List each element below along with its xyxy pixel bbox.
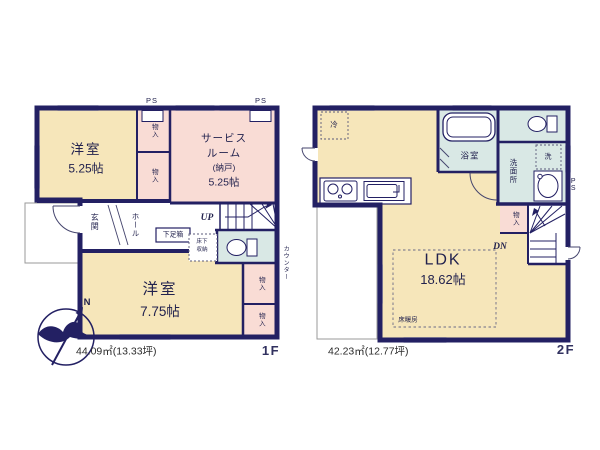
stove-icon <box>324 181 357 201</box>
entrance-door-gap <box>77 206 83 233</box>
bedroom1-size: 5.25帖 <box>68 163 103 176</box>
service-room-name-1: サービス <box>201 133 247 144</box>
toilet2-icon <box>528 116 557 132</box>
bedroom2-label: 洋室 <box>142 282 177 298</box>
stairs-window-gap <box>565 247 571 260</box>
ps-shaft-1 <box>142 111 163 122</box>
floor1-label: 1F <box>262 344 280 358</box>
floor-heating-label: 床暖房 <box>398 318 418 325</box>
ldk-label: LDK <box>424 253 461 270</box>
service-room-size: 5.25帖 <box>209 177 240 188</box>
stairs-down-label: DN <box>493 243 507 253</box>
closet-label-1: 物入 <box>150 124 157 139</box>
bathtub-icon <box>443 113 495 141</box>
floor2-area: 42.23㎡(12.77坪) <box>328 346 409 357</box>
closet-label-3: 物入 <box>257 277 264 292</box>
ps-shaft-2 <box>250 111 271 122</box>
side-door-gap <box>312 148 318 161</box>
floor1-area: 44.09㎡(13.33坪) <box>76 346 157 357</box>
ldk-size: 18.62帖 <box>420 273 466 287</box>
hall-label: ホール <box>131 212 139 238</box>
sink-icon <box>364 182 404 201</box>
service-room-name-2: ルーム <box>207 148 241 159</box>
underfloor-storage-label-1: 床下 <box>196 240 207 246</box>
bathroom-label: 浴室 <box>460 152 479 161</box>
ps-label-2: PS <box>255 97 267 105</box>
refrigerator-label: 冷 <box>330 121 338 129</box>
counter-label: カウンター <box>282 246 288 281</box>
shoe-box-label: 下足箱 <box>163 231 183 238</box>
closet-column-2 <box>243 263 279 339</box>
washroom-label: 洗面所 <box>509 158 517 184</box>
stairs-up-label: UP <box>201 214 214 224</box>
entrance-step-marks <box>108 205 128 245</box>
underfloor-storage-label-2: 収納 <box>196 248 207 254</box>
washing-machine-pan <box>534 171 562 201</box>
closet-label-4: 物入 <box>257 313 264 328</box>
floor2-plan <box>302 106 580 343</box>
bedroom1-label: 洋室 <box>71 143 102 157</box>
stairs-f1 <box>225 202 278 230</box>
laundry-label: 洗 <box>545 153 552 160</box>
floor2-label: 2F <box>557 343 575 357</box>
entrance-label: 玄関 <box>90 213 98 231</box>
balcony <box>317 205 377 339</box>
ps-label-3: PS <box>569 178 576 192</box>
ps-label-1: PS <box>146 97 158 105</box>
entrance-porch <box>25 203 80 263</box>
floor-plan-page: PS PS 洋室 5.25帖 物入 物入 サービス ルーム (納戸) 5.25帖… <box>0 0 600 450</box>
closet-label-5: 物入 <box>511 212 518 227</box>
service-room-name-3: (納戸) <box>213 164 236 173</box>
toilet1-icon <box>227 239 257 256</box>
north-label: N <box>84 298 91 308</box>
closet-label-2: 物入 <box>150 169 157 184</box>
bedroom2-size: 7.75帖 <box>140 305 180 319</box>
